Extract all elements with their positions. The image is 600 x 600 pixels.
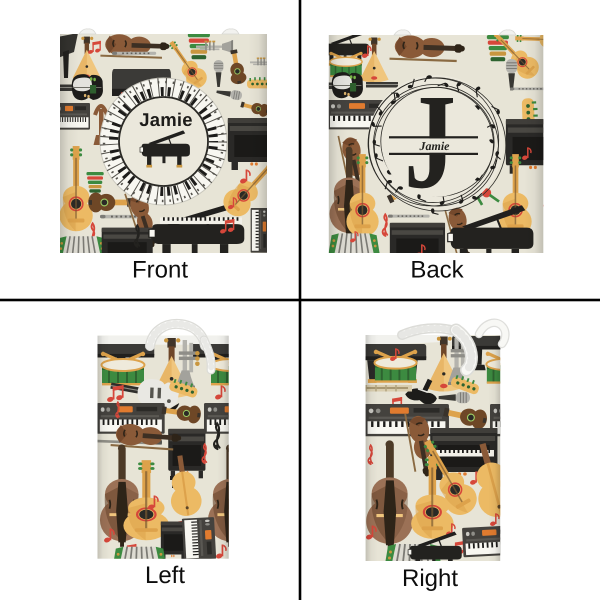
svg-text:Right: Right: [402, 565, 458, 592]
svg-text:Front: Front: [132, 257, 188, 284]
svg-text:Back: Back: [410, 257, 464, 284]
svg-text:Left: Left: [145, 562, 185, 589]
